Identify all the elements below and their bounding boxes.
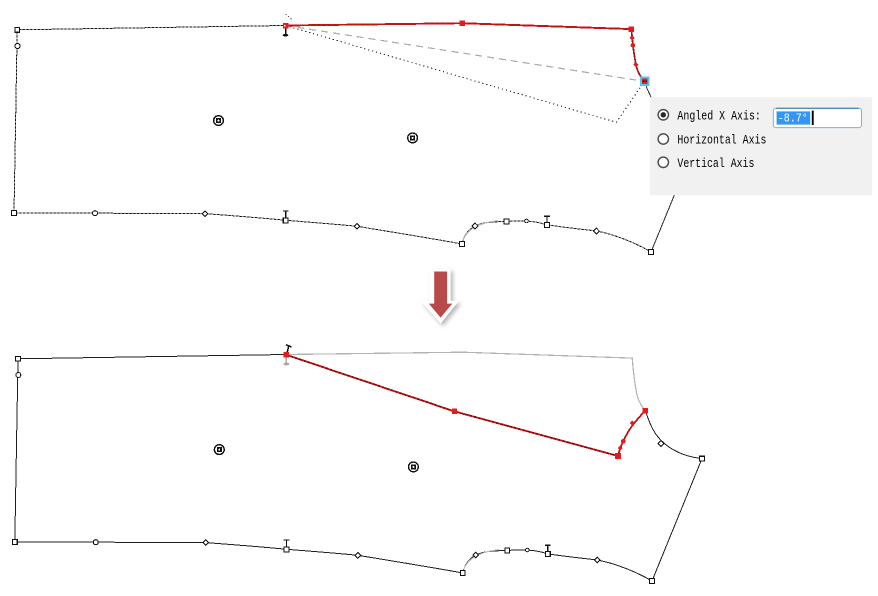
svg-text:Horizontal Axis: Horizontal Axis [677,134,766,148]
svg-text:Angled X Axis:: Angled X Axis: [677,109,761,123]
svg-text:-8.7°: -8.7° [778,113,808,126]
svg-text:Vertical Axis: Vertical Axis [677,157,754,171]
